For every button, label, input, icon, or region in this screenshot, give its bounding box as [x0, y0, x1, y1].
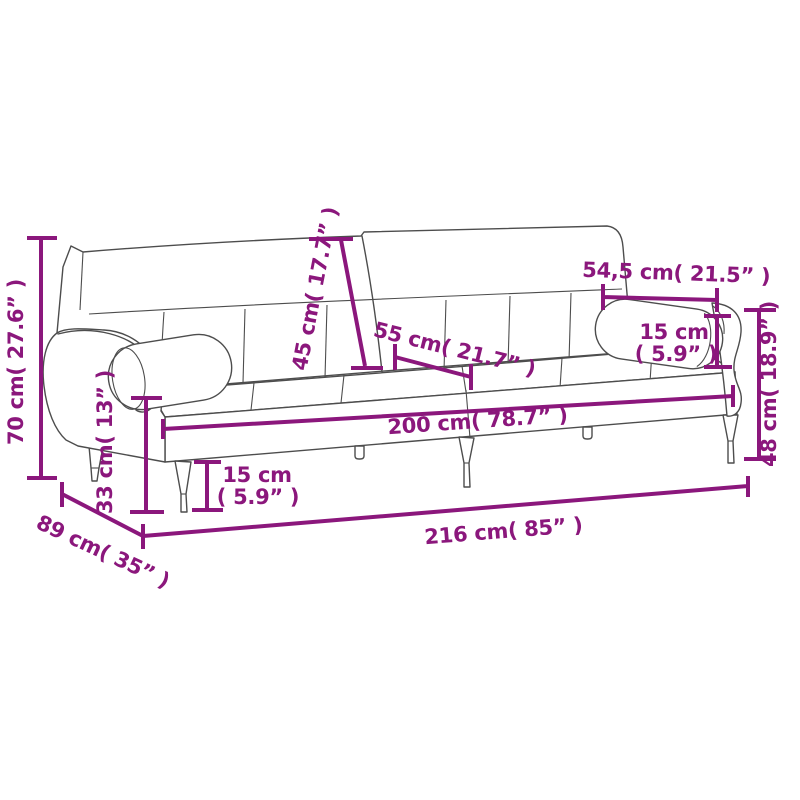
dim-label-overall-height: 70 cm( 27.6” ) [4, 279, 28, 445]
dim-label-seat-height: 33 cm( 13” ) [93, 370, 117, 514]
dim-label-base-depth: 89 cm( 35” ) [33, 510, 174, 593]
dim-label-armrest-height: 48 cm( 18.9” ) [757, 301, 781, 467]
diagram-canvas: 70 cm( 27.6” ) 45 cm( 17.7” ) 55 cm( 21.… [0, 0, 800, 800]
dim-label-leg-height-in: ( 5.9” ) [217, 485, 299, 509]
leg-front-left [175, 461, 191, 512]
dim-label-overall-width: 216 cm( 85” ) [424, 513, 584, 549]
leg-front-center [459, 437, 474, 487]
leg-rear-center-right [583, 427, 592, 439]
leg-rear-center-left [355, 446, 364, 459]
dim-label-leg-height-cm: 15 cm [222, 463, 291, 487]
sofa-dimension-diagram: 70 cm( 27.6” ) 45 cm( 17.7” ) 55 cm( 21.… [0, 0, 800, 800]
dim-label-arm-cushion-diameter-in: ( 5.9” ) [635, 342, 717, 366]
dim-label-arm-cushion-diameter-cm: 15 cm [639, 320, 708, 344]
leg-front-right [723, 415, 738, 463]
